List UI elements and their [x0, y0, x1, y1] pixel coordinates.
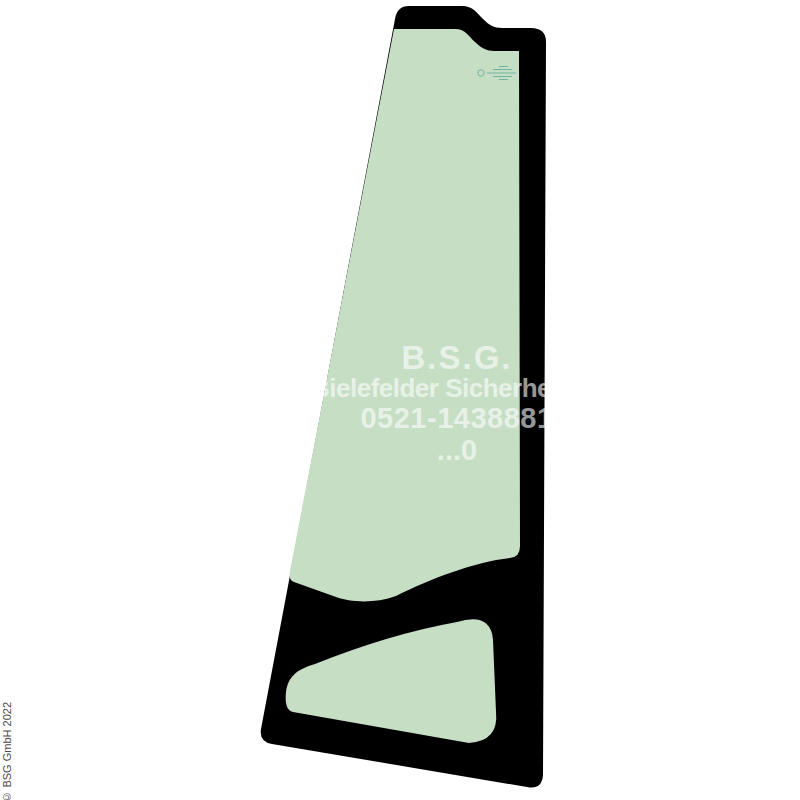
watermark-line-brand: B.S.G. [401, 341, 512, 374]
product-image-stage: B.S.G. Bielefelder Sicherheits 0521-1438… [0, 0, 800, 800]
copyright-text: © BSG GmbH 2022 [1, 702, 13, 800]
watermark-line-company: Bielefelder Sicherheits [311, 375, 580, 401]
watermark-line-phone: 0521-1438881 [360, 404, 553, 433]
watermark-line-suffix: ...0 [437, 436, 477, 465]
main-glass-pane [290, 29, 521, 601]
